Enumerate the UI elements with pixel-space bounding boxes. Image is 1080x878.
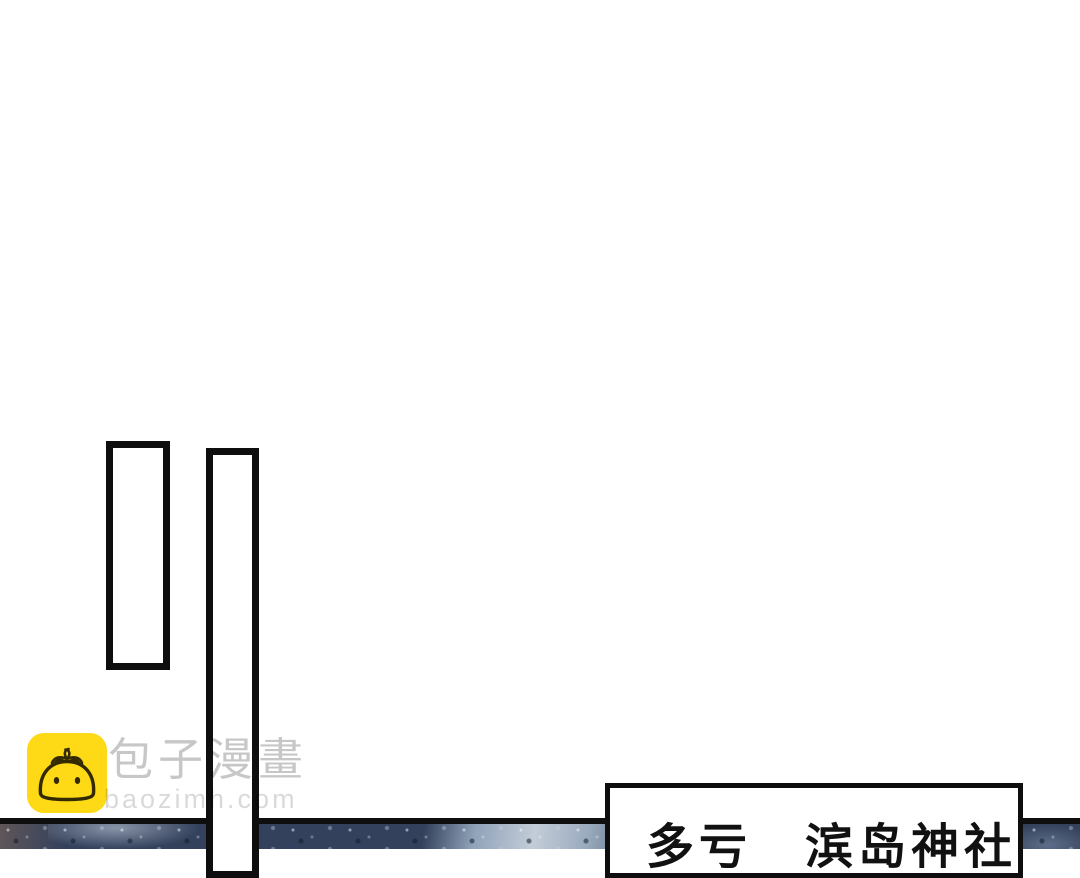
panel-bar-right bbox=[206, 448, 259, 878]
baozi-bun-icon bbox=[27, 733, 107, 813]
comic-page: { "speech_box": { "text": "多亏 滨岛神社" }, "… bbox=[0, 0, 1080, 843]
watermark-domain-text: baozimh.com bbox=[104, 786, 298, 813]
panel-bar-left bbox=[106, 441, 170, 670]
speech-text: 多亏 滨岛神社 bbox=[646, 820, 1018, 875]
speech-box: 多亏 滨岛神社 bbox=[605, 783, 1023, 878]
